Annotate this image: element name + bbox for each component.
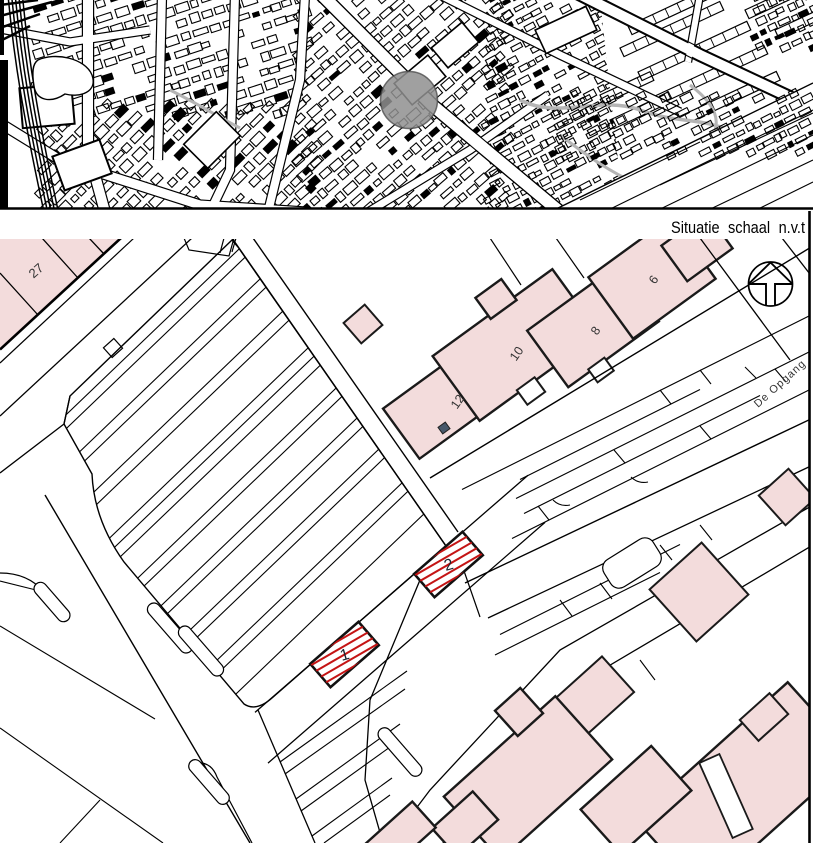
- svg-text:Situatie schaal n.v.t: Situatie schaal n.v.t: [671, 219, 805, 237]
